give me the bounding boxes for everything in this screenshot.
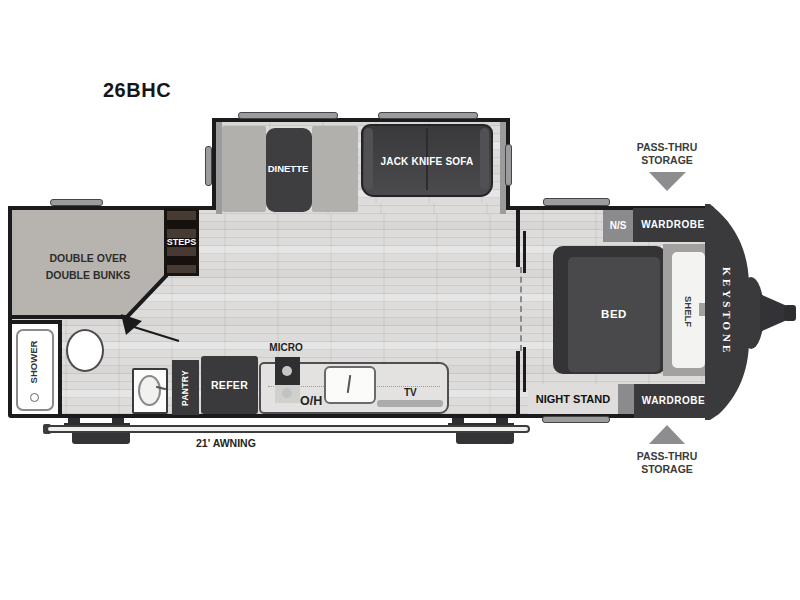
wardrobe-top: WARDROBE: [633, 208, 713, 242]
shelf-label: SHELF: [681, 268, 695, 356]
window-slideout-2: [378, 112, 478, 119]
bed-label: BED: [601, 309, 627, 321]
toilet: [66, 329, 104, 372]
night-stand-label: NIGHT STAND: [536, 394, 610, 405]
bedroom-door-track: [520, 267, 522, 351]
entry-steps: STEPS: [164, 208, 199, 276]
night-stand-bottom: NIGHT STAND: [528, 384, 618, 414]
window-slideout-right: [505, 144, 512, 186]
pass-thru-arrow-bottom: [649, 425, 685, 444]
bedroom-wall-bottom-b: [523, 347, 526, 392]
bedroom-wall-top-b: [523, 231, 526, 273]
ns-label: N/S: [610, 221, 627, 231]
tv-unit: [377, 400, 443, 407]
window-front-left: [50, 199, 103, 206]
vanity-basin: [138, 375, 161, 406]
hitch-cone: [760, 294, 787, 332]
dresser-bottom: [618, 384, 634, 414]
shelf-notch: [699, 303, 705, 316]
night-stand-top: N/S: [603, 210, 633, 242]
steps-label: STEPS: [167, 238, 197, 247]
bedroom-wall-bottom-a: [516, 351, 520, 414]
wardrobe-top-label: WARDROBE: [641, 220, 704, 230]
wardrobe-bottom-label: WARDROBE: [642, 396, 705, 406]
range-lower-burner: [282, 388, 292, 398]
kitchen-sink: [324, 366, 376, 404]
awning-label: 21' AWNING: [196, 438, 256, 449]
shower-drain: [30, 393, 39, 402]
bedroom-wall-top-a: [516, 210, 520, 267]
hitch-coupler: [784, 305, 796, 321]
micro-label: MICRO: [264, 343, 308, 353]
refrigerator: REFER: [201, 356, 258, 414]
awning-rail: [46, 425, 530, 433]
pass-thru-arrow-top: [649, 172, 686, 191]
range-burner: [282, 366, 292, 376]
pantry-label: PANTRY: [179, 363, 191, 413]
bunk-label-line2: DOUBLE BUNKS: [14, 270, 162, 281]
bed-mattress: BED: [568, 257, 660, 372]
tv-label: TV: [404, 388, 417, 398]
window-bedroom-bottom: [542, 416, 610, 423]
bunk-label-line1: DOUBLE OVER: [14, 253, 162, 264]
pass-thru-top-line2: STORAGE: [641, 154, 693, 167]
dinette-label: DINETTE: [256, 164, 320, 174]
model-title: 26BHC: [103, 80, 171, 100]
window-bedroom-top: [543, 198, 610, 206]
wardrobe-bottom: WARDROBE: [634, 384, 713, 418]
refer-label: REFER: [211, 380, 248, 391]
pass-thru-bottom-label: PASS-THRU STORAGE: [617, 450, 717, 476]
pass-thru-top-label: PASS-THRU STORAGE: [617, 141, 717, 167]
pass-thru-bottom-line2: STORAGE: [641, 463, 693, 476]
shower-wall-right: [58, 320, 62, 418]
hitch-base: [738, 277, 764, 349]
window-slideout-1: [238, 112, 338, 119]
overhead-label: O/H: [300, 395, 322, 408]
keystone-brand: KEYSTONE: [718, 256, 734, 366]
floorplan-canvas: 26BHC DINETTE JACK KNIFE SOFA DOUBLE OVE…: [0, 0, 800, 600]
shower-label: SHOWER: [28, 327, 40, 397]
pass-thru-top-line1: PASS-THRU: [637, 141, 697, 154]
sofa-label: JACK KNIFE SOFA: [365, 157, 489, 167]
window-slideout-left: [205, 146, 212, 186]
pass-thru-bottom-line1: PASS-THRU: [637, 450, 697, 463]
